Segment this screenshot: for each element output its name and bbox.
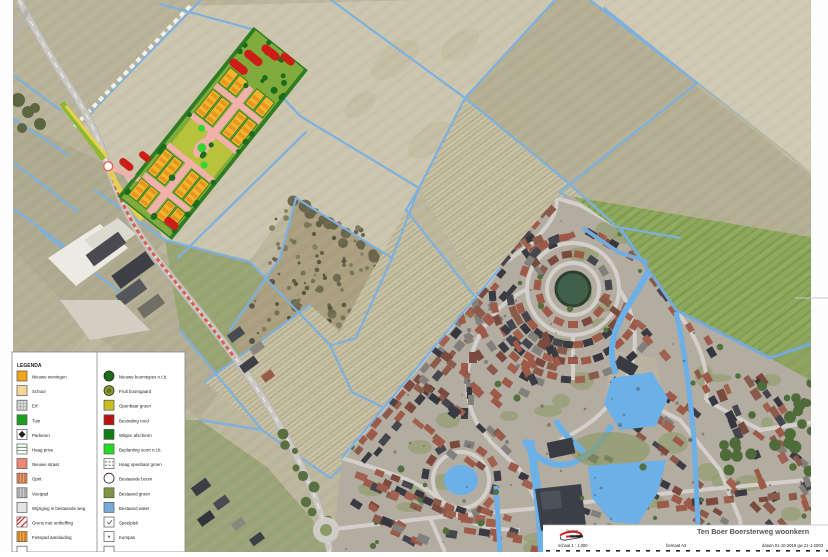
svg-text:Speelplek: Speelplek: [119, 521, 139, 526]
svg-text:Bestaande boom: Bestaande boom: [119, 477, 153, 482]
svg-text:Ten Boer Boersterweg woonkern: Ten Boer Boersterweg woonkern: [697, 527, 809, 536]
svg-text:Haag prive: Haag prive: [32, 448, 54, 453]
svg-text:datum 01-10-2019 gw 21-1-2003: datum 01-10-2019 gw 21-1-2003: [762, 543, 824, 548]
svg-text:Haag openbaar groen: Haag openbaar groen: [119, 462, 162, 467]
svg-text:LEGENDA: LEGENDA: [17, 363, 42, 369]
svg-text:Bestrating rood: Bestrating rood: [119, 418, 149, 423]
svg-text:Kompas: Kompas: [119, 535, 136, 540]
svg-text:Bestaand groen: Bestaand groen: [119, 491, 151, 496]
svg-text:Schuur: Schuur: [32, 389, 46, 394]
svg-text:Voetpad: Voetpad: [32, 491, 49, 496]
svg-text:Tuin: Tuin: [32, 418, 41, 423]
svg-text:Oprit: Oprit: [32, 477, 42, 482]
svg-text:Fietspad aanduiding: Fietspad aanduiding: [32, 535, 72, 540]
svg-text:Nieuwe woningen: Nieuwe woningen: [32, 375, 67, 380]
svg-text:Nieuwe boomtypes n.t.b.: Nieuwe boomtypes n.t.b.: [119, 375, 167, 380]
svg-text:schaal 1 : 1.000: schaal 1 : 1.000: [558, 543, 588, 548]
svg-text:Fruit boomgaard: Fruit boomgaard: [119, 389, 152, 394]
svg-text:Beplanting soort n.t.b.: Beplanting soort n.t.b.: [119, 448, 162, 453]
svg-text:Wijziging in bestaande weg: Wijziging in bestaande weg: [32, 506, 86, 511]
svg-text:Nieuwe straat: Nieuwe straat: [32, 462, 60, 467]
svg-text:Wilgen afscherm: Wilgen afscherm: [119, 433, 152, 438]
svg-text:Openbaar groen: Openbaar groen: [119, 404, 152, 409]
svg-text:Bestaand water: Bestaand water: [119, 506, 150, 511]
svg-text:formaat A2: formaat A2: [666, 543, 687, 548]
svg-text:Grens met ontheffing: Grens met ontheffing: [32, 521, 73, 526]
svg-text:Erf: Erf: [32, 404, 38, 409]
svg-text:Parkeren: Parkeren: [32, 433, 50, 438]
